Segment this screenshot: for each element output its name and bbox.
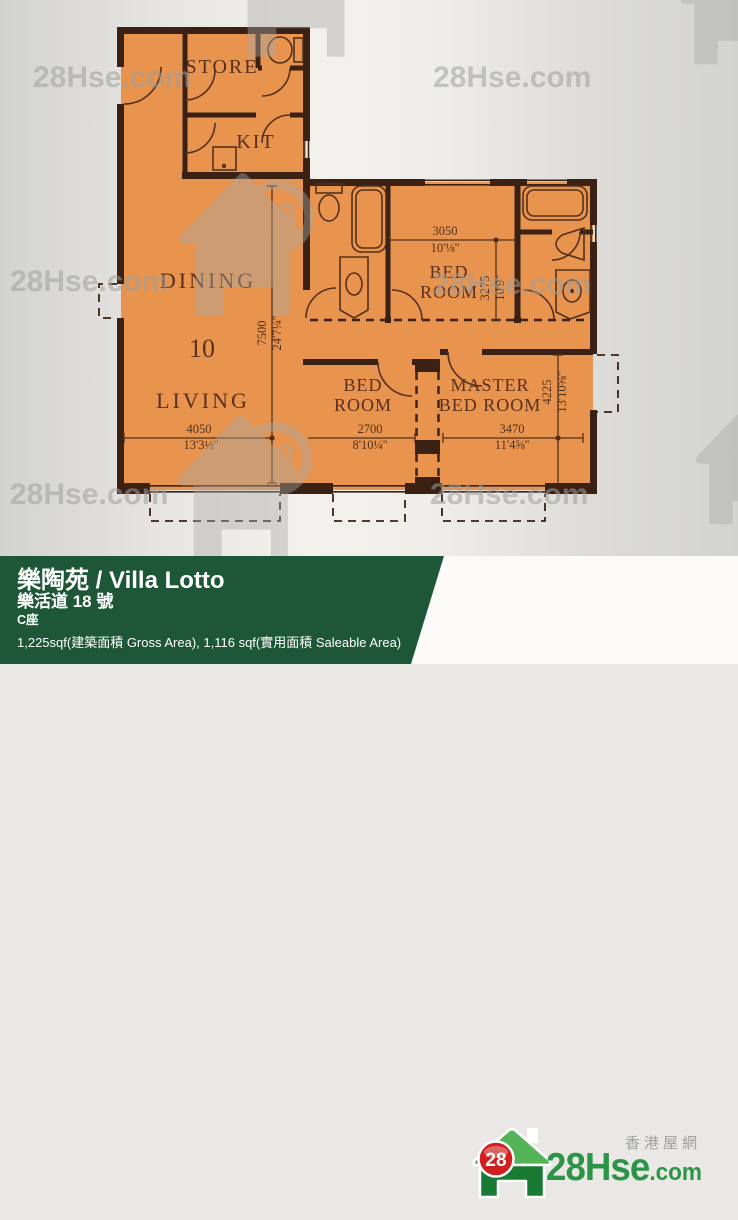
unit-number: 10 <box>189 334 215 363</box>
logo-brand: 28Hse.com <box>546 1146 702 1190</box>
house-logo-icon: 28 <box>470 1123 554 1201</box>
watermark-badge: 28 <box>257 195 297 236</box>
watermark-text: 28Hse.com <box>433 61 591 94</box>
dim-bed2-ft: 8'10¼'' <box>353 438 388 452</box>
dim-bed1-ft: 10'⅛'' <box>431 241 460 255</box>
watermark-text: 28Hse.com <box>10 265 168 298</box>
property-info-bar: 樂陶苑 / Villa Lotto 樂活道 18 號 C座 1,225sqf(建… <box>0 556 738 664</box>
dim-master-depth-mm: 4225 <box>540 380 554 405</box>
dim-bed2-mm: 2700 <box>358 422 383 436</box>
dim-living-mm: 4050 <box>187 422 212 436</box>
logo-brand-suffix: .com <box>649 1159 702 1186</box>
dim-master-ft: 11'4⅝'' <box>495 438 529 452</box>
watermark-text: 28Hse.com <box>33 61 191 94</box>
master-bedroom-label: BED ROOM <box>439 395 542 415</box>
logo-badge: 28 <box>485 1150 506 1171</box>
floorplan-page: STORE KIT DINING 10 LIVING BED ROOM BED … <box>0 0 738 664</box>
dim-master-mm: 3470 <box>500 422 525 436</box>
logo-brand-main: 28Hse <box>546 1146 649 1189</box>
watermark-text: 28Hse.com <box>430 478 588 511</box>
bedroom2-label: BED <box>344 375 383 395</box>
property-area: 1,225sqf(建築面積 Gross Area), 1,116 sqf(實用面… <box>17 632 401 651</box>
house-watermark-icon <box>700 409 738 524</box>
watermark-badge: 28 <box>255 437 295 478</box>
house-watermark-icon <box>685 0 738 64</box>
bedroom2-label: ROOM <box>334 395 392 415</box>
store-label: STORE <box>186 56 259 78</box>
watermark-text: 28Hse.com <box>10 478 168 511</box>
dim-depth-ft: 24'7¼'' <box>270 316 284 351</box>
watermark-text: 28Hse.com <box>433 268 591 301</box>
living-label: LIVING <box>156 388 250 413</box>
kitchen-label: KIT <box>236 131 275 153</box>
master-bedroom-label: MASTER <box>450 375 529 395</box>
property-block: C座 <box>17 609 39 628</box>
dim-depth-mm: 7500 <box>255 321 269 346</box>
floorplan-image: STORE KIT DINING 10 LIVING BED ROOM BED … <box>0 0 738 556</box>
dim-bed1-mm: 3050 <box>433 224 458 238</box>
site-logo: 香港屋網 28 28Hse.com <box>462 1112 738 1220</box>
dim-master-depth-ft: 13'10⅝'' <box>555 371 569 412</box>
